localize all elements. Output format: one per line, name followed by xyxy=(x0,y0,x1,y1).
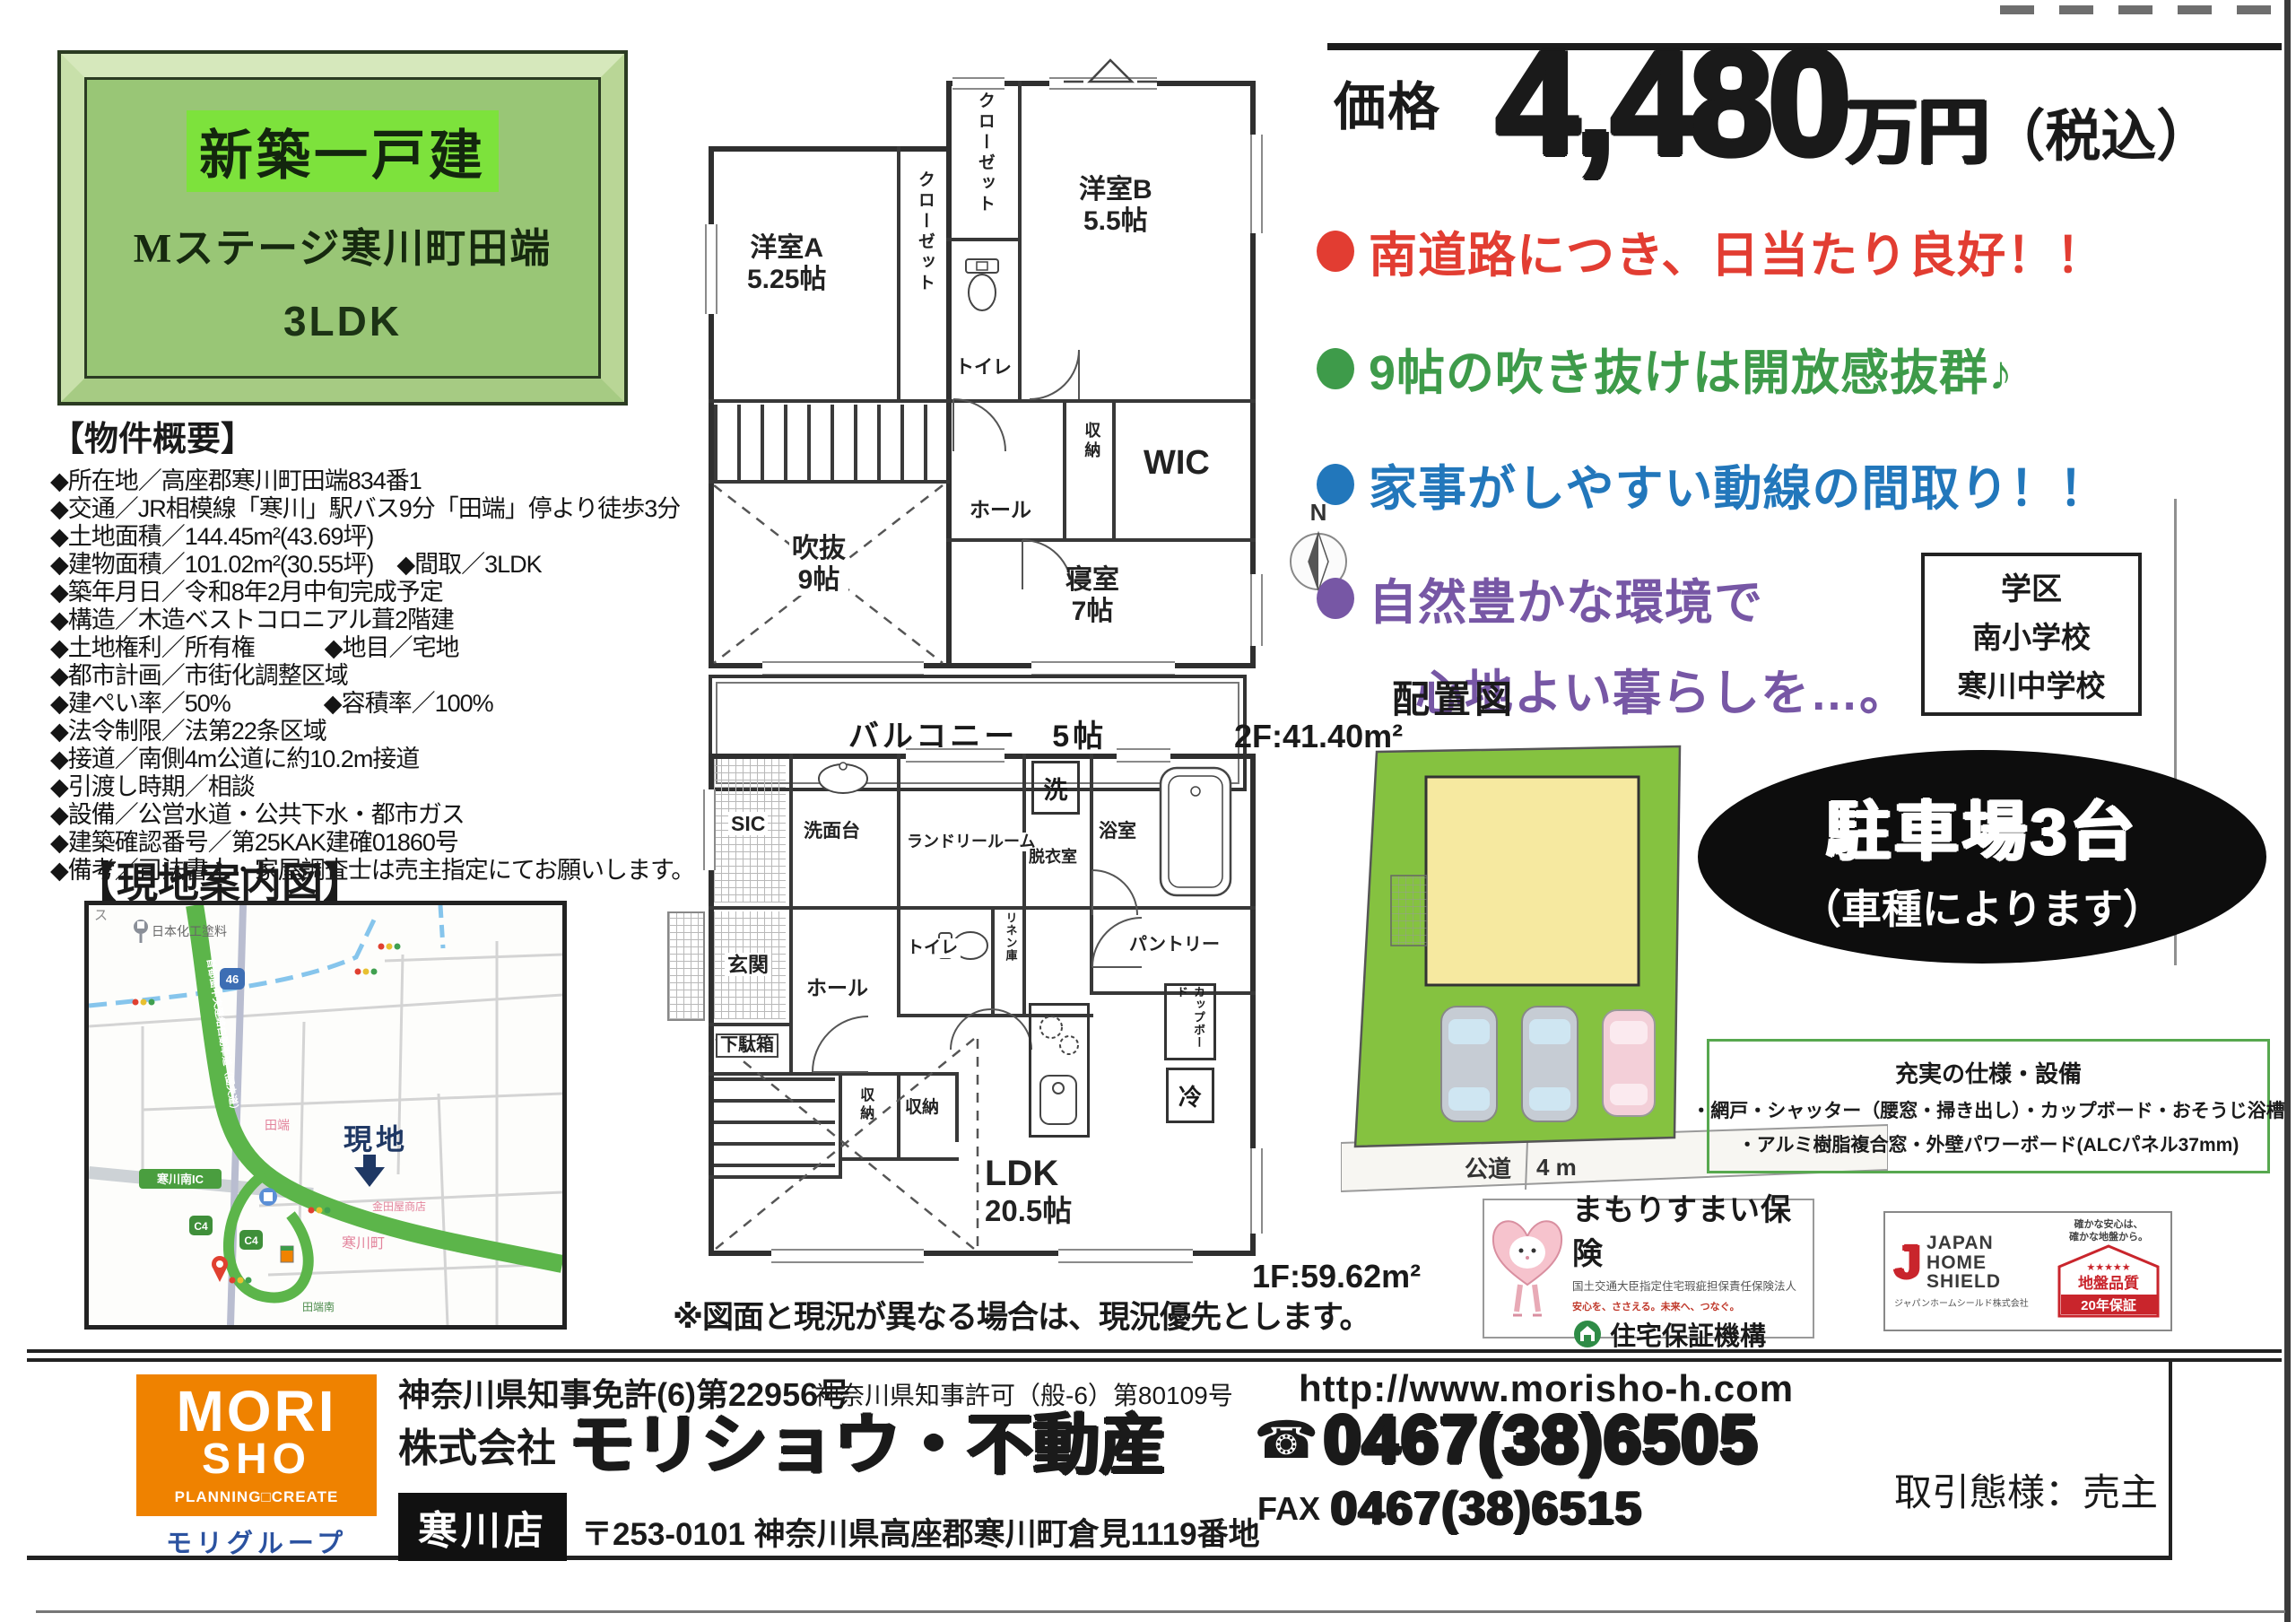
overview-item: ◆建物面積／101.02m²(30.55坪) ◆間取／3LDK xyxy=(50,551,700,579)
mamori-badge: まもりすまい保険 国土交通大臣指定住宅瑕疵担保責任保険法人 安心を、ささえる。未… xyxy=(1483,1199,1814,1339)
room-label-wic: WIC xyxy=(1141,444,1213,484)
logo-line3: PLANNING□CREATE xyxy=(175,1488,339,1506)
room-label-datsui: 脱衣室 xyxy=(1026,848,1080,867)
map-pin-store-red xyxy=(212,1256,228,1282)
access-map: 首都圏中央連絡自動車道（圏央道） 46 寒川南IC C4 C4 ス 日本化工塗料… xyxy=(84,901,567,1330)
toilet-icon xyxy=(961,257,1003,316)
plan1f-area-label: 1F:59.62m² xyxy=(1252,1258,1421,1295)
map-label-paint: 日本化工塗料 xyxy=(152,924,227,938)
cupboard-box: カップボード xyxy=(1164,983,1216,1060)
specs-line2: ・アルミ樹脂複合窓・外壁パワーボード(ALCパネル37mm) xyxy=(1738,1130,2239,1157)
overview-item: ◆築年月日／令和8年2月中旬完成予定 xyxy=(50,579,700,606)
footer-address: 〒253-0101 神奈川県高座郡寒川町倉見1119番地 xyxy=(581,1509,1260,1555)
overview-item: ◆接道／南側4m公道に約10.2m接道 xyxy=(50,746,700,773)
jhs-brand: JAPAN HOME SHIELD xyxy=(1926,1234,2001,1291)
map-ic-badge: 寒川南IC xyxy=(139,1169,222,1189)
site-plan-heading: 配置図 xyxy=(1392,669,1516,724)
map-graphic: 首都圏中央連絡自動車道（圏央道） 46 寒川南IC C4 C4 ス 日本化工塗料… xyxy=(89,905,562,1325)
overview-item: ◆設備／公営水道・公共下水・都市ガス xyxy=(50,801,700,829)
car-icon xyxy=(1603,1010,1655,1116)
room-label-toilet-1f: トイレ xyxy=(904,938,961,958)
parking-badge: 駐車場3台 （車種によります） xyxy=(1698,750,2266,964)
logo-group-name: モリグループ xyxy=(136,1522,377,1560)
footer-vline xyxy=(2169,1362,2172,1556)
svg-text:20年保証: 20年保証 xyxy=(2081,1297,2136,1313)
fridge-box: 冷 xyxy=(1166,1068,1214,1123)
room-label-yoshitsu-b: 洋室B5.5帖 xyxy=(1076,175,1155,237)
svg-text:C4: C4 xyxy=(194,1220,208,1233)
room-label-bedroom: 寝室7帖 xyxy=(1063,565,1122,627)
logo-line2: SHO xyxy=(202,1438,311,1481)
selling-point-text: 南道路につき、日当たり良好！！ xyxy=(1369,215,2105,286)
car-icon xyxy=(1441,1007,1497,1121)
overview-item: ◆建ぺい率／50% ◆容積率／100% xyxy=(50,690,700,718)
jhs-company: ジャパンホームシールド株式会社 xyxy=(1894,1295,2029,1309)
price-label: 価格 xyxy=(1334,65,1441,140)
scan-edge-bottom xyxy=(36,1610,2285,1613)
site-road-width: 4 m xyxy=(1536,1154,1577,1181)
map-label-shop: 金田屋商店 xyxy=(372,1199,426,1213)
plan1f-porch xyxy=(667,911,705,1021)
selling-point-text: 9帖の吹き抜けは開放感抜群♪ xyxy=(1369,333,2013,404)
footer-fax: FAX 0467(38)6515 xyxy=(1257,1482,1643,1536)
school-district-title: 学区 xyxy=(2001,564,2062,608)
footer-company: 株式会社 モリショウ・不動産 xyxy=(398,1412,1166,1478)
fax-number: 0467(38)6515 xyxy=(1331,1482,1643,1536)
svg-text:寒川南IC: 寒川南IC xyxy=(156,1173,204,1186)
room-label-void: 吹抜9帖 xyxy=(789,534,848,596)
scan-artifact-top xyxy=(2000,5,2285,14)
scan-edge-right xyxy=(2284,0,2291,1622)
overview-item: ◆引渡し時期／相談 xyxy=(50,773,700,801)
overview-item: ◆所在地／高座郡寒川町田端834番1 xyxy=(50,467,700,495)
room-label-laundry: ランドリールーム xyxy=(904,833,1038,851)
parking-line2: （車種によります） xyxy=(1801,876,2163,935)
bullet-icon xyxy=(1317,231,1354,272)
map-label-minami: 田端南 xyxy=(302,1300,335,1313)
room-label-sic: SIC xyxy=(728,812,768,835)
room-label-getabako: 下駄箱 xyxy=(716,1033,778,1058)
site-road-label: 公道 xyxy=(1465,1155,1511,1182)
overview-item: ◆構造／木造ベストコロニアル葺2階建 xyxy=(50,606,700,634)
room-label-ldk: LDK20.5帖 xyxy=(982,1153,1074,1228)
property-overview: 【物件概要】 ◆所在地／高座郡寒川町田端834番1 ◆交通／JR相模線「寒川」駅… xyxy=(50,411,700,885)
map-label-town: 寒川町 xyxy=(342,1234,385,1251)
room-label-storage-2f: 収納 xyxy=(1073,422,1110,466)
room-label-senmen: 洗面台 xyxy=(801,821,863,842)
room-label-yoshitsu-a: 洋室A5.25帖 xyxy=(744,233,829,295)
morisho-logo: MORI SHO PLANNING□CREATE xyxy=(136,1374,377,1516)
overview-item: ◆土地面積／144.45m²(43.69坪) xyxy=(50,523,700,551)
bullet-icon xyxy=(1317,578,1354,619)
selling-point-1: 南道路につき、日当たり良好！！ xyxy=(1317,215,2108,286)
specs-line1: ・網戸・シャッター（腰窓・掃き出し）・カップボード・おそうじ浴槽 xyxy=(1692,1096,2285,1123)
fax-label: FAX xyxy=(1257,1490,1320,1528)
bullet-icon xyxy=(1317,464,1354,505)
overview-list: ◆所在地／高座郡寒川町田端834番1 ◆交通／JR相模線「寒川」駅バス9分「田端… xyxy=(50,467,700,885)
room-label-bath: 浴室 xyxy=(1096,821,1139,842)
svg-text:46: 46 xyxy=(226,972,239,986)
mamori-slogan: 安心を、ささえる。未来へ、つなぐ。 xyxy=(1572,1299,1807,1313)
map-pin-paint xyxy=(134,920,148,943)
title-box: 新築一戸建 Mステージ寒川町田端 3LDK xyxy=(57,50,628,405)
room-label-genkan: 玄関 xyxy=(725,953,771,976)
price-amount: 4,480 xyxy=(1496,27,1846,178)
phone-icon: ☎ xyxy=(1254,1409,1318,1470)
footer-rule-top2 xyxy=(27,1358,2282,1362)
room-label-toilet-2f: トイレ xyxy=(952,357,1014,379)
room-label-hall-2f: ホール xyxy=(967,498,1034,521)
svg-text:★★★★★: ★★★★★ xyxy=(2086,1262,2130,1273)
jutaku-hosho-icon xyxy=(1572,1319,1603,1349)
map-route46-badge: 46 xyxy=(220,968,245,990)
drawing-note: ※図面と現況が異なる場合は、現況優先とします。 xyxy=(673,1292,1370,1338)
specs-box: 充実の仕様・設備 ・網戸・シャッター（腰窓・掃き出し）・カップボード・おそうじ浴… xyxy=(1707,1039,2270,1173)
mamori-mascot-icon xyxy=(1490,1206,1565,1331)
jhs-tagline: 確かな安心は、 確かな地盤から。 xyxy=(2056,1219,2161,1244)
tel-number: 0467(38)6505 xyxy=(1324,1401,1759,1478)
school-district-box: 学区 南小学校 寒川中学校 xyxy=(1921,553,2142,716)
kitchen-unit xyxy=(1029,1003,1090,1138)
map-pin-store-orange xyxy=(281,1246,293,1262)
room-label-storage1: 収納 xyxy=(847,1087,883,1128)
mamori-title: まもりすまい保険 xyxy=(1572,1185,1807,1273)
mamori-subtitle: 国土交通大臣指定住宅瑕疵担保責任保険法人 xyxy=(1572,1277,1807,1294)
map-site-arrow-head xyxy=(354,1167,385,1187)
selling-point-2: 9帖の吹き抜けは開放感抜群♪ xyxy=(1317,333,2108,404)
map-pin-station xyxy=(259,1188,277,1206)
map-site-arrow xyxy=(363,1155,376,1167)
property-name: Mステージ寒川町田端 xyxy=(134,215,552,274)
overview-item: ◆都市計画／市街化調整区域 xyxy=(50,662,700,690)
logo-line1: MORI xyxy=(176,1384,336,1439)
selling-point-3: 家事がしやすい動線の間取り！！ xyxy=(1317,449,2108,519)
washer-box: 洗 xyxy=(1031,761,1080,815)
svg-text:地盤品質: 地盤品質 xyxy=(2078,1274,2139,1292)
jhs-j-logo: J xyxy=(1894,1241,1921,1285)
map-c4-badge: C4 xyxy=(239,1230,263,1250)
price-unit: 万円 xyxy=(1846,97,1989,178)
specs-title: 充実の仕様・設備 xyxy=(1895,1056,2082,1089)
property-type-badge: 新築一戸建 xyxy=(187,110,499,192)
jhs-quality-icon: ★★★★★ 地盤品質 20年保証 xyxy=(2056,1243,2161,1319)
school-elementary: 南小学校 xyxy=(1972,614,2091,657)
room-label-storage2: 収納 xyxy=(902,1098,942,1118)
bathtub-icon xyxy=(1157,764,1234,899)
map-label-su: ス xyxy=(94,908,108,923)
overview-item: ◆土地権利／所有権 ◆地目／宅地 xyxy=(50,634,700,662)
selling-point-text: 家事がしやすい動線の間取り！！ xyxy=(1369,449,2108,519)
room-label-linen: リネン庫 xyxy=(994,911,1026,966)
price-value: 4,480 万円 （税込） xyxy=(1496,27,2212,178)
school-junior-high: 寒川中学校 xyxy=(1958,662,2106,705)
svg-text:C4: C4 xyxy=(244,1234,258,1247)
mamori-org: 住宅保証機構 xyxy=(1610,1315,1766,1353)
overview-item: ◆法令制限／法第22条区域 xyxy=(50,718,700,746)
footer-rule-top xyxy=(27,1349,2282,1353)
footer-license2: 神奈川県知事許可（般-6）第80109号 xyxy=(814,1376,1233,1412)
bullet-icon xyxy=(1317,348,1354,389)
property-layout: 3LDK xyxy=(283,297,402,345)
sink-icon xyxy=(812,759,874,797)
map-label-tabata: 田端 xyxy=(265,1118,290,1132)
car-icon xyxy=(1522,1007,1578,1121)
overview-item: ◆交通／JR相模線「寒川」駅バス9分「田端」停より徒歩3分 xyxy=(50,495,700,523)
jhs-badge: J JAPAN HOME SHIELD ジャパンホームシールド株式会社 確かな安… xyxy=(1883,1211,2172,1331)
company-name: モリショウ・不動産 xyxy=(569,1412,1166,1478)
overview-heading: 【物件概要】 xyxy=(50,411,700,460)
selling-point-text: 自然豊かな環境で xyxy=(1369,562,1763,633)
deal-type: 取引態様：売主 xyxy=(1894,1462,2158,1517)
room-label-closet-top: クローゼット xyxy=(961,92,1008,220)
map-site-label: 現地 xyxy=(344,1117,408,1158)
branch-badge: 寒川店 xyxy=(398,1493,567,1561)
title-box-panel: 新築一戸建 Mステージ寒川町田端 3LDK xyxy=(84,77,601,379)
map-c4-badge: C4 xyxy=(189,1216,213,1235)
company-prefix: 株式会社 xyxy=(398,1416,556,1478)
room-label-hall-1f: ホール xyxy=(804,976,871,999)
room-label-pantry: パントリー xyxy=(1126,935,1222,955)
room-label-closet-a: クローゼット xyxy=(904,170,945,299)
footer-tel: ☎ 0467(38)6505 xyxy=(1254,1401,1759,1478)
flyer-page: 新築一戸建 Mステージ寒川町田端 3LDK 【物件概要】 ◆所在地／高座郡寒川町… xyxy=(0,0,2296,1622)
parking-line1: 駐車場3台 xyxy=(1826,779,2138,873)
price-tax: （税込） xyxy=(1989,109,2212,178)
